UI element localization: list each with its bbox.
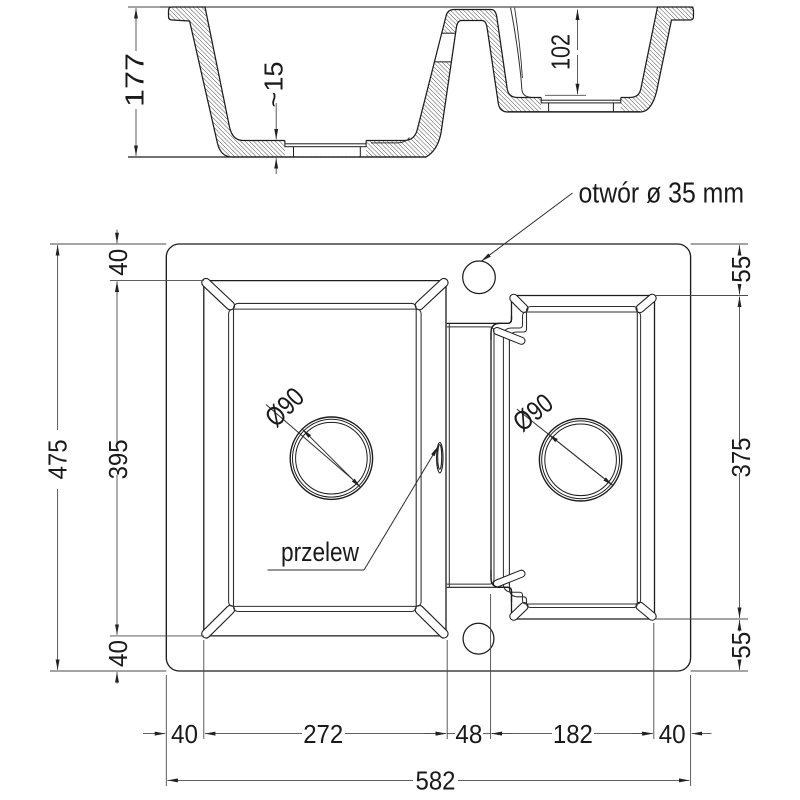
- svg-text:40: 40: [103, 640, 133, 667]
- svg-text:177: 177: [120, 53, 150, 107]
- svg-text:475: 475: [42, 439, 72, 479]
- svg-text:272: 272: [303, 719, 343, 749]
- svg-text:przelew: przelew: [281, 537, 359, 567]
- svg-text:40: 40: [659, 719, 686, 749]
- svg-text:~15: ~15: [259, 62, 289, 108]
- svg-text:182: 182: [553, 719, 593, 749]
- svg-text:55: 55: [726, 632, 756, 659]
- svg-text:40: 40: [171, 719, 198, 749]
- svg-text:48: 48: [455, 719, 482, 749]
- svg-text:55: 55: [726, 256, 756, 283]
- svg-text:395: 395: [103, 439, 133, 479]
- svg-text:375: 375: [726, 438, 756, 478]
- svg-text:otwór ø 35 mm: otwór ø 35 mm: [579, 177, 745, 209]
- svg-text:102: 102: [546, 34, 576, 70]
- svg-text:582: 582: [416, 766, 456, 796]
- svg-text:40: 40: [103, 249, 133, 276]
